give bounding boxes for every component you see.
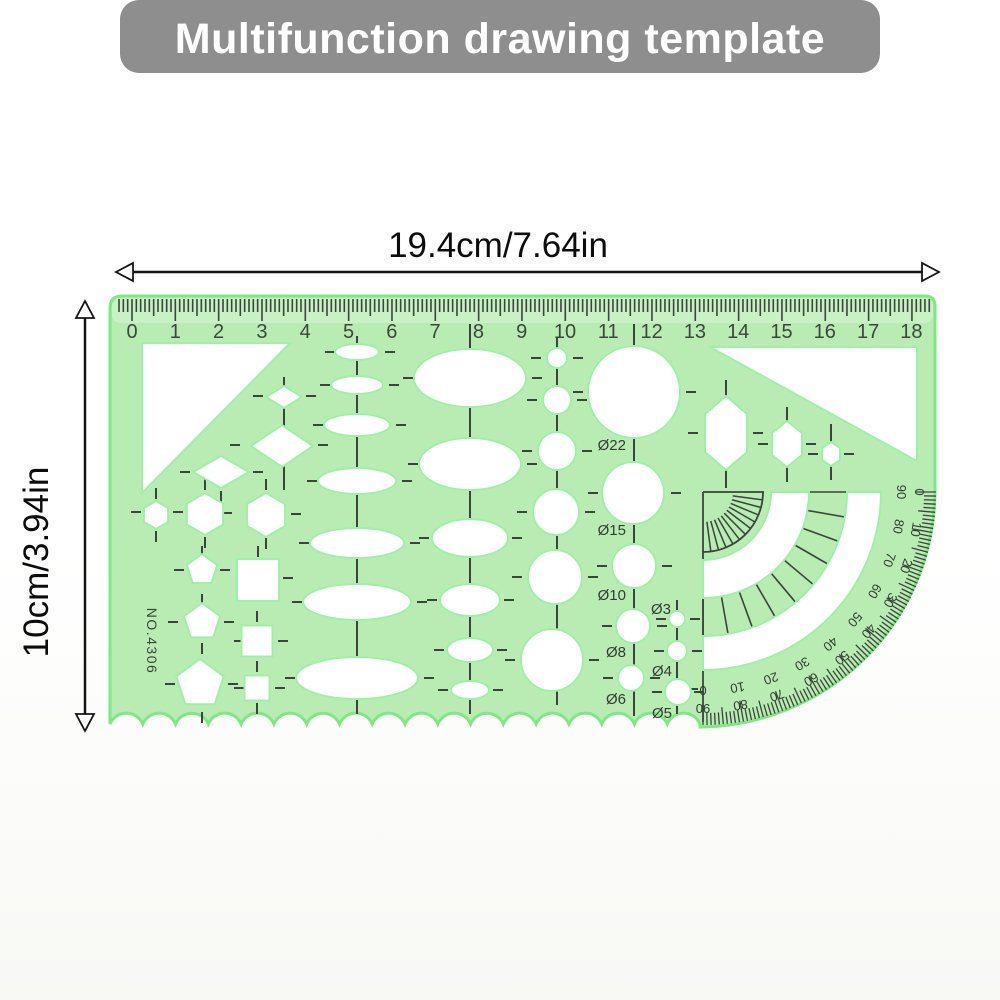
ellipse-cutout-a7 <box>296 657 418 699</box>
ellipse-cutout-a2 <box>331 376 383 394</box>
cm-number: 7 <box>430 321 441 343</box>
outer-degree-label: 80 <box>732 697 749 714</box>
ellipse-cutout-b6 <box>451 681 489 699</box>
width-dimension-annotation: 19.4cm/7.64in <box>116 226 939 281</box>
circle-cutout-3 <box>538 432 576 470</box>
arrowhead-right-icon <box>922 263 939 281</box>
ellipse-cutout-b1 <box>414 349 526 407</box>
banner-title: Multifunction drawing template <box>175 15 825 63</box>
circle-cutout-22mm <box>588 346 680 438</box>
cm-number: 8 <box>473 321 484 343</box>
cm-number: 12 <box>640 321 662 343</box>
circle-cutout-6 <box>521 629 583 691</box>
cm-number: 2 <box>213 321 224 343</box>
ellipse-cutout-b5 <box>447 638 493 662</box>
ellipse-cutout-b4 <box>440 584 500 616</box>
cm-number: 16 <box>814 321 836 343</box>
diameter-label-3mm: Ø3 <box>651 601 671 618</box>
hexagon-cutout-2 <box>187 493 223 535</box>
cm-number: 4 <box>300 321 311 343</box>
height-dimension-label: 10cm/3.94in <box>17 467 56 658</box>
circle-cutout-15mm <box>602 462 664 524</box>
cm-number: 0 <box>126 321 137 343</box>
inner-degree-label: 80 <box>890 518 907 535</box>
product-listing-image: Multifunction drawing template 19.4cm/7.… <box>0 0 1000 1000</box>
hexagon-cutout-1 <box>144 501 168 529</box>
degree-tick <box>715 713 716 725</box>
ellipse-cutout-b3 <box>432 519 508 557</box>
ellipse-cutout-a6 <box>303 584 411 620</box>
square-cutout-2 <box>242 626 273 657</box>
height-dimension-annotation: 10cm/3.94in <box>17 301 94 731</box>
outer-degree-label: 10 <box>908 521 925 538</box>
cm-number: 6 <box>386 321 397 343</box>
diameter-label-10mm: Ø10 <box>598 587 626 604</box>
cm-number: 1 <box>170 321 181 343</box>
diameter-label-5mm: Ø5 <box>652 705 672 722</box>
width-dimension-label: 19.4cm/7.64in <box>388 226 608 265</box>
cm-number: 14 <box>727 321 749 343</box>
cm-number: 17 <box>857 321 879 343</box>
square-cutout-3 <box>245 676 270 701</box>
cm-number: 13 <box>684 321 706 343</box>
model-number: NO.4306 <box>144 608 160 675</box>
ellipse-cutout-a1 <box>335 344 379 360</box>
inner-degree-label: 90 <box>894 485 909 499</box>
circle-cutout-3mm <box>669 611 685 627</box>
circle-cutout-4 <box>533 489 579 535</box>
hexagon-cutout-3 <box>247 493 285 537</box>
diameter-label-6mm: Ø6 <box>606 691 626 708</box>
circle-cutout-1 <box>547 348 567 368</box>
degree-tick <box>924 504 936 505</box>
circle-cutout-10mm <box>612 544 656 588</box>
annotated-product-photo: Multifunction drawing template 19.4cm/7.… <box>0 0 1000 1000</box>
cm-number: 9 <box>516 321 527 343</box>
cm-number: 10 <box>554 321 576 343</box>
title-banner: Multifunction drawing template <box>120 0 880 73</box>
circle-cutout-6mm <box>618 665 644 691</box>
ellipse-cutout-b2 <box>419 438 521 490</box>
cm-number: 5 <box>343 321 354 343</box>
circle-cutout-5mm <box>665 679 691 705</box>
ellipse-cutout-a3 <box>324 414 390 436</box>
circle-cutout-5 <box>528 550 582 604</box>
degree-tick <box>923 507 935 508</box>
circle-cutout-2 <box>543 386 571 414</box>
diameter-label-22mm: Ø22 <box>598 437 626 454</box>
inner-degree-label: 0 <box>699 683 706 698</box>
outer-degree-label: 0 <box>912 488 927 495</box>
arrowhead-up-icon <box>76 301 94 318</box>
circle-cutout-8mm <box>616 609 650 643</box>
degree-tick <box>718 712 719 724</box>
cm-number: 15 <box>770 321 792 343</box>
drawing-template-stencil: 0123456789101112131415161718 90080107020… <box>110 296 936 727</box>
outer-degree-label: 90 <box>696 701 710 716</box>
diameter-label-4mm: Ø4 <box>652 663 672 680</box>
diameter-label-15mm: Ø15 <box>598 522 626 539</box>
square-cutout-1 <box>237 559 279 601</box>
inner-degree-label: 10 <box>729 679 746 696</box>
diameter-label-8mm: Ø8 <box>606 644 626 661</box>
hex-nut-cutout-3 <box>822 442 840 466</box>
ellipse-cutout-a5 <box>310 528 404 558</box>
cm-number: 18 <box>900 321 922 343</box>
arrowhead-left-icon <box>116 263 133 281</box>
cm-number: 11 <box>598 321 619 343</box>
circle-cutout-4mm <box>667 641 687 661</box>
cm-number: 3 <box>256 321 267 343</box>
arrowhead-down-icon <box>76 714 94 731</box>
ellipse-cutout-a4 <box>318 468 396 494</box>
